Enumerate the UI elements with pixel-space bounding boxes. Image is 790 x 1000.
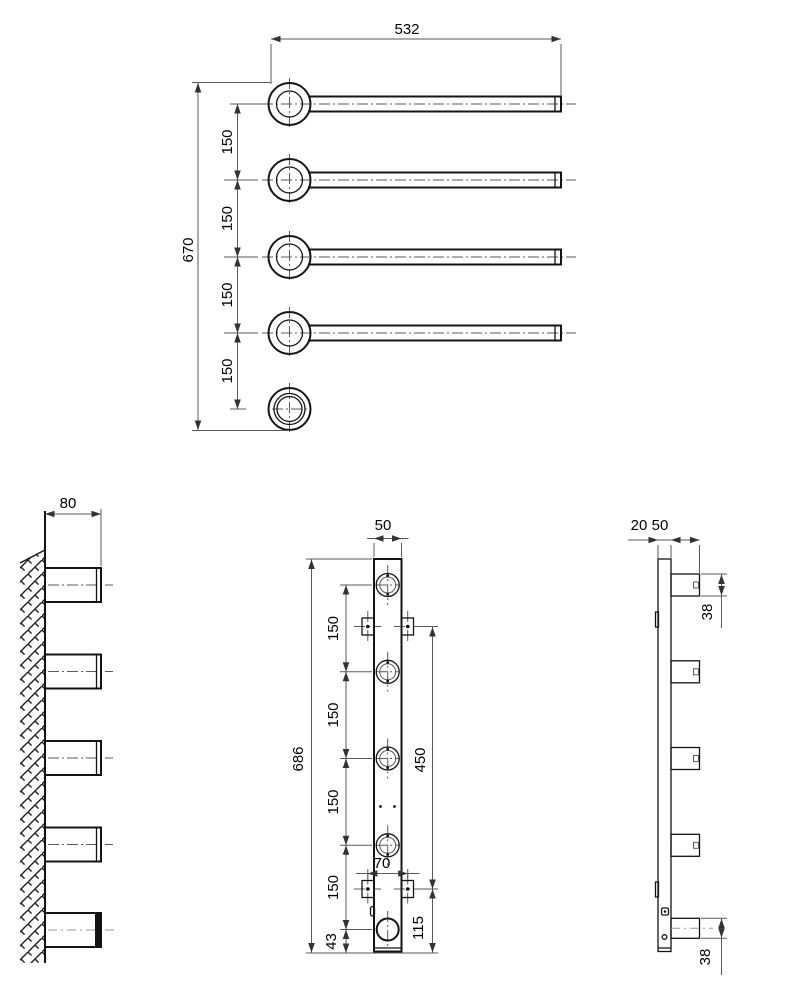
dim-bracket-span: 450 115	[410, 627, 438, 954]
dim-stub-bottom: 38	[697, 918, 727, 975]
profile-upper-tab	[656, 612, 659, 627]
dim-label-plan-height: 670	[180, 237, 197, 262]
cable-tab	[371, 907, 375, 917]
plan-centerlines	[262, 78, 576, 435]
dim-screw-span: 70	[356, 855, 420, 878]
dim-label-bar-height: 686	[290, 746, 307, 771]
dim-label-stub-length: 50	[652, 517, 669, 534]
dim-label-bottom-span: 115	[410, 916, 427, 940]
dim-label-plan-sp2: 150	[219, 206, 236, 231]
lower-bracket	[354, 874, 421, 905]
dim-label-plan-width: 532	[394, 21, 419, 38]
screw-head-dot	[664, 910, 667, 913]
dim-label-arm-length: 80	[60, 495, 77, 512]
swivel-arms-plan	[308, 97, 561, 341]
dim-label-plan-sp3: 150	[219, 282, 236, 307]
wall-hatch	[20, 550, 45, 963]
front-view: 50 686 150 150 150 150	[290, 517, 438, 953]
plan-view: 532 670 150 150 150 150	[180, 21, 576, 435]
dim-label-front-sp4: 150	[325, 875, 342, 900]
profile-view: 20 50 38 38	[628, 517, 727, 975]
dim-label-plate-depth: 20	[631, 517, 648, 534]
arm-stubs-side	[45, 568, 115, 947]
profile-lower-tab	[656, 882, 659, 897]
dim-label-plan-sp1: 150	[219, 129, 236, 154]
drawing-canvas: 532 670 150 150 150 150	[0, 0, 790, 1000]
dim-arm-length: 80	[45, 495, 101, 566]
dim-label-bar-width: 50	[375, 517, 392, 534]
dim-label-front-sp3: 150	[325, 789, 342, 814]
technical-drawing-towel-rail: 532 670 150 150 150 150	[0, 0, 790, 1000]
dim-label-front-sp2: 150	[325, 702, 342, 727]
dim-plan-width: 532	[271, 21, 561, 96]
small-hole	[662, 935, 667, 940]
dim-bar-width: 50	[367, 517, 409, 557]
profile-plate	[658, 559, 671, 952]
dim-label-screw-span: 70	[374, 855, 391, 872]
dim-plan-spacing-chain: 150 150 150 150	[219, 104, 262, 409]
dim-label-front-sp1: 150	[325, 616, 342, 641]
dim-label-stub-bottom: 38	[697, 949, 714, 966]
dim-plate-depth-stub-length: 20 50	[628, 517, 700, 573]
wall-side-view: 80	[20, 495, 115, 963]
front-bar	[374, 559, 402, 952]
profile-stubs	[671, 574, 713, 938]
dim-label-plan-sp4: 150	[219, 358, 236, 383]
dim-label-stub-top: 38	[699, 604, 716, 621]
upper-bracket	[354, 611, 421, 642]
dim-label-bottom-offset: 43	[323, 933, 340, 950]
dim-label-bracket-span: 450	[412, 747, 429, 772]
dim-stub-top: 38	[699, 574, 727, 628]
